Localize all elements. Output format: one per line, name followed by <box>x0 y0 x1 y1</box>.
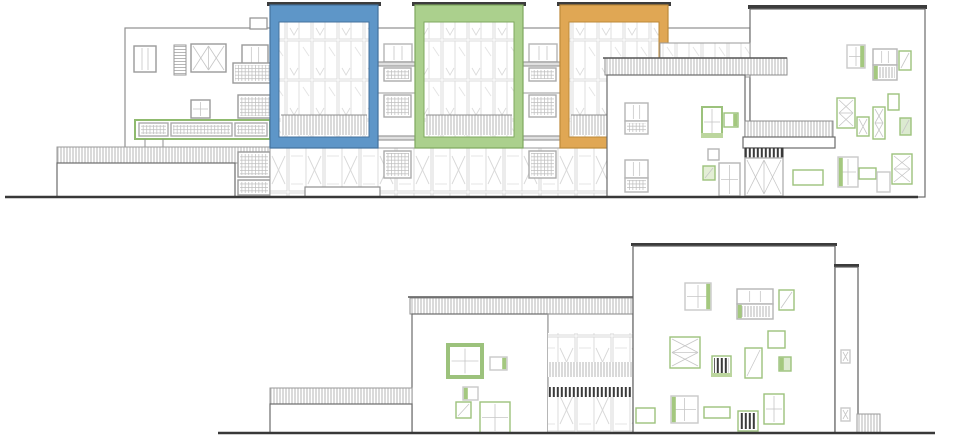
window-frame <box>793 170 823 185</box>
window <box>384 44 412 62</box>
window-infill <box>240 97 270 116</box>
elevation-drawing-svg <box>0 0 960 444</box>
window <box>456 402 471 418</box>
balcony-panel <box>384 151 411 178</box>
panel-fill <box>410 298 633 314</box>
window <box>625 178 648 192</box>
window <box>764 394 784 424</box>
window <box>490 357 507 370</box>
window <box>625 160 648 178</box>
window <box>873 107 885 139</box>
window-infill <box>739 306 771 317</box>
window <box>847 45 865 68</box>
window <box>899 51 911 70</box>
window <box>448 345 482 377</box>
window-frame <box>529 44 557 62</box>
terrace-railing <box>605 58 787 75</box>
window <box>139 123 168 136</box>
balcony-panel <box>384 68 411 81</box>
balcony-panel <box>238 180 270 195</box>
panel-fill <box>281 115 367 135</box>
roof-railing <box>410 298 633 314</box>
window <box>134 46 156 72</box>
window <box>724 113 738 127</box>
window-frame <box>859 168 876 179</box>
panel-fill <box>548 387 633 397</box>
louver-vent <box>745 148 783 158</box>
window-frame <box>877 172 890 192</box>
balcony-railing <box>548 362 633 377</box>
panel-fill <box>857 414 880 433</box>
window-infill <box>141 125 166 134</box>
panel-fill <box>745 121 833 137</box>
window-frame <box>134 46 156 72</box>
window-accent-strip <box>672 397 676 422</box>
window-accent-strip <box>733 114 737 126</box>
top-elevation-drawing <box>5 2 927 197</box>
panel-fill <box>605 58 787 75</box>
floor-band <box>523 136 560 140</box>
window-frame <box>704 407 730 418</box>
balcony-panel <box>384 95 411 117</box>
window-infill <box>386 97 409 115</box>
window <box>703 166 715 180</box>
window-frame <box>737 289 773 304</box>
window <box>838 157 858 187</box>
louver-vent <box>174 45 186 75</box>
window-frame <box>636 408 655 423</box>
louver-band <box>548 387 633 397</box>
window-infill <box>235 65 270 81</box>
balcony-panel <box>529 68 556 81</box>
window <box>625 121 648 134</box>
window <box>636 408 655 423</box>
window-infill <box>627 180 646 190</box>
window-infill <box>237 125 265 134</box>
window-frame <box>873 49 897 65</box>
window-infill <box>531 70 554 79</box>
window-accent-strip <box>839 158 843 186</box>
floor-band <box>378 62 415 66</box>
window <box>873 49 897 65</box>
balcony-panel <box>238 152 270 177</box>
window-accent-strip <box>738 305 742 318</box>
window-accent-strip <box>464 388 468 399</box>
window-frame <box>625 160 648 178</box>
window-frame <box>768 331 785 348</box>
right-building <box>633 246 835 433</box>
window <box>708 149 719 160</box>
panel-fill <box>548 397 633 433</box>
parapet-step <box>250 18 267 29</box>
floor-band <box>378 136 415 140</box>
window-infill <box>714 358 729 374</box>
window <box>779 290 794 310</box>
window-infill <box>240 182 268 193</box>
window-frame <box>888 94 899 110</box>
window-sill <box>701 133 723 138</box>
window <box>191 44 226 72</box>
window-infill <box>740 413 756 429</box>
window <box>235 123 267 136</box>
window <box>704 407 730 418</box>
fence-railing <box>270 388 412 404</box>
window <box>779 357 791 371</box>
balcony-panel <box>529 95 556 117</box>
window-infill <box>386 153 409 176</box>
window <box>888 94 899 110</box>
window <box>719 163 740 196</box>
balcony-panel <box>233 63 272 83</box>
window <box>837 98 855 128</box>
balcony-panel <box>529 151 556 178</box>
panel-fill <box>548 362 633 377</box>
window-accent-strip <box>706 284 710 309</box>
window <box>191 100 210 118</box>
window <box>892 154 912 184</box>
balcony-railing <box>281 115 367 135</box>
curtain-wall <box>548 397 633 433</box>
floor-band <box>523 62 560 66</box>
panel-fill <box>745 148 783 158</box>
panel-fill <box>270 388 412 404</box>
window <box>670 337 700 368</box>
balcony-slab <box>743 137 835 148</box>
window <box>877 172 890 192</box>
window <box>529 44 557 62</box>
window <box>768 331 785 348</box>
window <box>900 118 911 135</box>
window <box>793 170 823 185</box>
hatch-block <box>857 414 880 433</box>
window <box>737 304 773 319</box>
window <box>873 65 897 80</box>
window <box>480 402 510 433</box>
window-frame <box>625 103 648 121</box>
window <box>625 103 648 121</box>
window-accent-strip <box>502 358 506 369</box>
window-infill <box>240 154 268 175</box>
window-accent-strip <box>874 66 878 79</box>
window <box>671 396 698 423</box>
window <box>841 350 850 363</box>
window-accent-strip <box>780 358 784 370</box>
window <box>702 107 722 137</box>
window <box>857 117 869 136</box>
window-infill <box>531 153 554 176</box>
window <box>859 168 876 179</box>
window <box>463 387 478 400</box>
window-sill <box>711 373 732 377</box>
panel-fill <box>426 115 512 135</box>
window-infill <box>173 125 230 134</box>
window <box>737 289 773 304</box>
window <box>745 158 783 196</box>
window-frame <box>384 44 412 62</box>
balcony-railing <box>745 121 833 137</box>
window <box>685 283 711 310</box>
balcony-panel <box>238 95 272 118</box>
entry-step <box>305 187 380 197</box>
window-infill <box>627 123 646 132</box>
window-frame <box>708 149 719 160</box>
balcony-railing <box>426 115 512 135</box>
window <box>841 408 850 421</box>
window <box>745 348 762 378</box>
bottom-elevation-drawing <box>218 243 935 433</box>
low-wall <box>57 163 235 197</box>
window-infill <box>531 97 554 115</box>
window <box>171 123 232 136</box>
architectural-elevations-canvas <box>0 0 960 444</box>
window <box>738 411 758 431</box>
low-wall <box>270 404 412 433</box>
window-accent-strip <box>860 46 864 67</box>
panel-fill <box>174 45 186 75</box>
window-infill <box>386 70 409 79</box>
window-infill <box>875 67 895 78</box>
